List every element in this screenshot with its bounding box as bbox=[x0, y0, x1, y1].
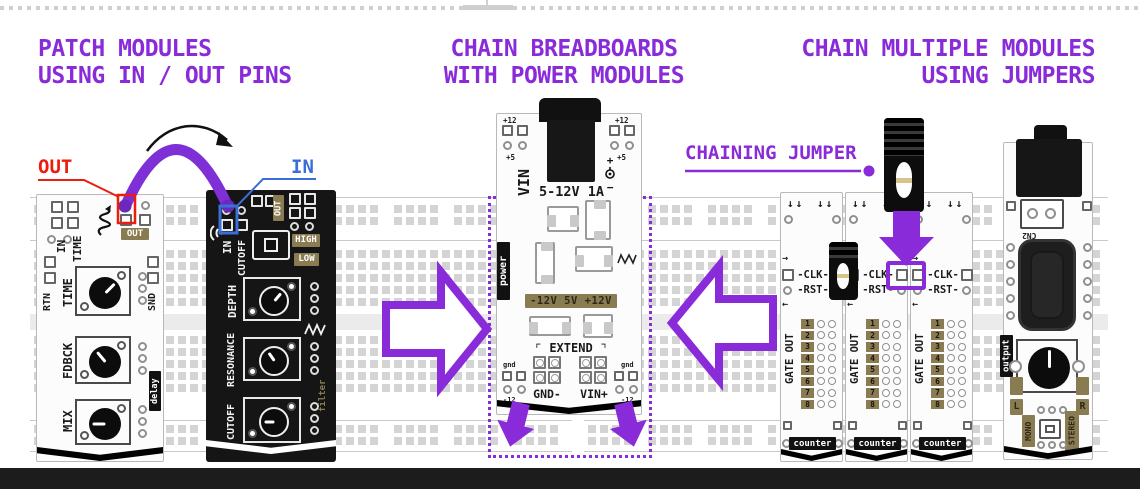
pad bbox=[1048, 406, 1056, 414]
clk-pins-highlight-box bbox=[886, 261, 926, 290]
down-arrows-icon: ↓↓ bbox=[852, 197, 869, 210]
down-arrows-icon: ↓↓ bbox=[787, 197, 804, 210]
chevron bbox=[37, 447, 163, 461]
pad bbox=[51, 201, 63, 213]
gate-out-label: GATE OUT bbox=[849, 319, 861, 399]
pad bbox=[913, 421, 922, 430]
smd-component bbox=[547, 206, 579, 232]
power-module: +12 +12 +5 +5 VIN + − 5-12V 1A power -12… bbox=[496, 113, 642, 415]
pad bbox=[1082, 201, 1092, 211]
pad bbox=[138, 405, 147, 414]
pad bbox=[138, 429, 147, 438]
delay-module: IN TIME OUT RTN SND TIME FDBCK bbox=[36, 194, 164, 462]
knob-label-depth: DEPTH bbox=[226, 282, 239, 320]
pad bbox=[139, 214, 151, 226]
speaker bbox=[1018, 239, 1076, 331]
pin-number: 8 bbox=[931, 400, 944, 410]
heading-line: USING IN / OUT PINS bbox=[38, 63, 292, 90]
jumper-installed bbox=[829, 242, 858, 300]
filter-high-label: HIGH bbox=[292, 234, 320, 247]
chaining-jumper-label: CHAINING JUMPER bbox=[685, 144, 857, 163]
pad bbox=[629, 385, 638, 394]
pad bbox=[625, 141, 634, 150]
brand-logo-icon bbox=[304, 322, 326, 336]
filter-in-pin-label: IN bbox=[221, 234, 234, 260]
pad bbox=[1083, 311, 1092, 320]
screw bbox=[287, 402, 296, 411]
gnd-header-label: GND- bbox=[530, 387, 564, 401]
smd-component bbox=[529, 316, 571, 336]
delay-rtn-label: RTN bbox=[42, 287, 53, 317]
counter-module-1: ↓↓ ↓↓ → -CLK- -RST- ← GATE OUT 1 2 3 4 5… bbox=[780, 192, 843, 462]
in-pin-pad bbox=[222, 206, 231, 215]
ic-footprint bbox=[252, 230, 290, 260]
barrel-jack-body bbox=[547, 120, 595, 182]
pad bbox=[138, 417, 147, 426]
pad bbox=[289, 193, 301, 205]
header-pin bbox=[548, 371, 561, 384]
in-callout-label: IN bbox=[291, 158, 314, 177]
footer-bar bbox=[0, 468, 1140, 489]
pin-number: 5 bbox=[931, 365, 944, 375]
arrow-right-icon: → bbox=[782, 253, 788, 264]
pad bbox=[914, 215, 923, 224]
smd-component bbox=[575, 246, 613, 272]
pad bbox=[962, 215, 971, 224]
chevron bbox=[781, 449, 842, 461]
down-arrows-icon: ↓↓ bbox=[947, 197, 964, 210]
pad bbox=[304, 193, 316, 205]
pin-number: 3 bbox=[801, 342, 814, 352]
pin-number: 1 bbox=[931, 319, 944, 329]
gnd-small-label: gnd bbox=[621, 361, 634, 369]
heading-line: CHAIN MULTIPLE MODULES bbox=[780, 36, 1095, 63]
pad bbox=[1027, 208, 1038, 219]
knob-mix bbox=[75, 399, 131, 445]
header-pin bbox=[533, 356, 546, 369]
screw bbox=[248, 429, 257, 438]
pad bbox=[963, 421, 972, 430]
delay-name-tag: delay bbox=[149, 371, 161, 411]
pad bbox=[147, 256, 159, 268]
filter-out-pad-label: OUT bbox=[273, 195, 284, 221]
pad bbox=[615, 385, 624, 394]
screw bbox=[248, 307, 257, 316]
header-pin bbox=[579, 371, 592, 384]
pad bbox=[628, 371, 638, 381]
header-pin bbox=[579, 356, 592, 369]
pin-number: 2 bbox=[801, 331, 814, 341]
pad bbox=[614, 371, 624, 381]
pad bbox=[624, 125, 635, 136]
pad bbox=[1009, 360, 1022, 373]
heading-line: WITH POWER MODULES bbox=[420, 63, 708, 90]
pad bbox=[44, 272, 56, 284]
pad bbox=[1083, 243, 1092, 252]
coil-icon bbox=[93, 203, 119, 239]
gnd-small-label: gnd bbox=[503, 361, 516, 369]
pad bbox=[67, 201, 79, 213]
pad bbox=[1083, 260, 1092, 269]
brand-logo-icon bbox=[617, 252, 637, 265]
down-arrows-icon: ↓↓ bbox=[817, 197, 834, 210]
diagram-canvas: PATCH MODULES USING IN / OUT PINS CHAIN … bbox=[0, 0, 1140, 489]
pad bbox=[518, 141, 527, 150]
screw bbox=[80, 370, 89, 379]
knob-label-fdbck: FDBCK bbox=[61, 337, 75, 385]
pin-number: 6 bbox=[866, 377, 879, 387]
pad bbox=[517, 385, 526, 394]
gate-out-pins: 1 2 3 4 5 6 7 8 bbox=[931, 319, 966, 409]
pin-number: 8 bbox=[801, 400, 814, 410]
knob-depth bbox=[243, 277, 301, 321]
out-pin-pad bbox=[122, 201, 131, 210]
gate-out-label: GATE OUT bbox=[784, 319, 796, 399]
header-pin bbox=[533, 371, 546, 384]
pin-number: 7 bbox=[866, 388, 879, 398]
pad bbox=[502, 371, 512, 381]
pin-number: 6 bbox=[801, 377, 814, 387]
mode-selector bbox=[1039, 419, 1061, 439]
pin-number: 4 bbox=[801, 354, 814, 364]
pad bbox=[1083, 277, 1092, 286]
screw bbox=[287, 282, 296, 291]
plus-glyph: + bbox=[607, 154, 614, 167]
pin-number: 1 bbox=[801, 319, 814, 329]
header-pin bbox=[548, 356, 561, 369]
pad bbox=[310, 342, 319, 351]
chevron bbox=[497, 400, 641, 414]
pad bbox=[832, 215, 841, 224]
pad bbox=[849, 215, 858, 224]
pad bbox=[848, 421, 857, 430]
solder-pad bbox=[1010, 377, 1023, 395]
rst-pin bbox=[962, 286, 971, 295]
pad bbox=[783, 421, 792, 430]
plus12-label: +12 bbox=[503, 116, 517, 125]
header-pin bbox=[594, 371, 607, 384]
pad bbox=[310, 426, 319, 435]
pad bbox=[1037, 441, 1045, 449]
top-dotted-line bbox=[0, 6, 1140, 10]
chevron bbox=[846, 449, 907, 461]
counter-name-tag: counter bbox=[919, 437, 966, 450]
heading-line: PATCH MODULES bbox=[38, 36, 292, 63]
heading-patch-modules: PATCH MODULES USING IN / OUT PINS bbox=[38, 36, 292, 90]
pad bbox=[310, 366, 319, 375]
arrowhead bbox=[216, 132, 233, 147]
pad bbox=[310, 282, 319, 291]
pad bbox=[897, 215, 906, 224]
pin-number: 5 bbox=[801, 365, 814, 375]
knob-label-time: TIME bbox=[61, 273, 75, 313]
delay-in-pin-label: IN bbox=[55, 233, 68, 259]
rst-label: -RST- bbox=[795, 284, 831, 296]
pad bbox=[609, 125, 620, 136]
pad bbox=[610, 141, 619, 150]
pad bbox=[898, 421, 907, 430]
vin-header-label: VIN+ bbox=[577, 387, 611, 401]
pad bbox=[237, 206, 246, 215]
pad bbox=[51, 217, 63, 229]
barrel-jack bbox=[539, 98, 601, 122]
rst-pin bbox=[783, 286, 792, 295]
pad bbox=[1072, 360, 1085, 373]
patch-direction-arrow bbox=[147, 126, 227, 151]
knob-fdbck bbox=[75, 336, 131, 384]
heading-chain-modules: CHAIN MULTIPLE MODULES USING JUMPERS bbox=[780, 36, 1095, 90]
counter-name-tag: counter bbox=[854, 437, 901, 450]
pad bbox=[310, 306, 319, 315]
pad bbox=[310, 354, 319, 363]
chevron bbox=[911, 449, 972, 461]
pad bbox=[138, 296, 147, 305]
pad bbox=[503, 141, 512, 150]
screw bbox=[117, 404, 126, 413]
power-name-tag: power bbox=[497, 242, 510, 300]
filter-low-label: LOW bbox=[294, 253, 319, 266]
pad bbox=[138, 354, 147, 363]
pad bbox=[138, 366, 147, 375]
out-pin-pad bbox=[120, 214, 132, 226]
gate-out-label: GATE OUT bbox=[914, 319, 926, 399]
heading-line: USING JUMPERS bbox=[780, 63, 1095, 90]
pin-number: 4 bbox=[931, 354, 944, 364]
filter-module: IN CUTOFF OUT HIGH LOW DEPTH RESONANCE bbox=[206, 190, 336, 462]
pad bbox=[138, 272, 147, 281]
header-pin bbox=[594, 356, 607, 369]
audio-jack bbox=[1016, 139, 1082, 197]
extend-label: ⌜ EXTEND ⌝ bbox=[531, 341, 611, 355]
clk-label: -CLK- bbox=[925, 269, 961, 281]
counter-name-tag: counter bbox=[789, 437, 836, 450]
cn2-connector bbox=[1020, 199, 1064, 229]
vin-label: VIN bbox=[515, 160, 533, 204]
arrow-left-icon: ← bbox=[912, 299, 918, 310]
pin-number: 8 bbox=[866, 400, 879, 410]
smd-component bbox=[585, 200, 611, 240]
left-channel-label: L bbox=[1010, 399, 1023, 415]
smd-component bbox=[535, 242, 555, 284]
pin-number: 3 bbox=[931, 342, 944, 352]
arrow-left-icon: ← bbox=[782, 299, 788, 310]
knob-resonance bbox=[243, 337, 301, 381]
heading-line: CHAIN BREADBOARDS bbox=[420, 36, 708, 63]
arrow-left-icon: ← bbox=[847, 299, 853, 310]
pad bbox=[502, 125, 513, 136]
mono-label: MONO bbox=[1022, 415, 1035, 447]
gate-out-pins: 1 2 3 4 5 6 7 8 bbox=[866, 319, 901, 409]
screw bbox=[117, 271, 126, 280]
pad bbox=[44, 256, 56, 268]
pad bbox=[1006, 243, 1015, 252]
pad bbox=[305, 222, 314, 231]
pad bbox=[1048, 441, 1056, 449]
knob-label-cutoff: CUTOFF bbox=[226, 400, 237, 444]
pad bbox=[310, 294, 319, 303]
knob-label-mix: MIX bbox=[61, 403, 75, 439]
pad bbox=[1083, 294, 1092, 303]
filter-name-tag: filter bbox=[318, 376, 328, 416]
counter-module-3: ↓↓ ↓↓ → -CLK- -RST- ← GATE OUT 1 2 3 4 5… bbox=[910, 192, 973, 462]
plus5-label: +5 bbox=[506, 153, 515, 162]
pin-number: 5 bbox=[866, 365, 879, 375]
jumper-floating bbox=[884, 118, 924, 212]
pin-number: 3 bbox=[866, 342, 879, 352]
heading-chain-breadboards: CHAIN BREADBOARDS WITH POWER MODULES bbox=[420, 36, 708, 90]
pin-number: 1 bbox=[866, 319, 879, 329]
pin-number: 2 bbox=[866, 331, 879, 341]
pad bbox=[141, 201, 150, 210]
pad bbox=[304, 207, 316, 219]
knob-cutoff bbox=[243, 397, 301, 443]
solder-pad bbox=[1076, 377, 1089, 395]
rst-label: -RST- bbox=[925, 284, 961, 296]
delay-out-pad-label: OUT bbox=[121, 228, 149, 240]
volume-knob bbox=[1016, 339, 1078, 393]
rail-voltages-label: -12V 5V +12V bbox=[525, 294, 617, 308]
chaining-callout-dot bbox=[864, 166, 875, 177]
knob-label-resonance: RESONANCE bbox=[226, 332, 237, 388]
gate-out-pins: 1 2 3 4 5 6 7 8 bbox=[801, 319, 836, 409]
pad bbox=[833, 421, 842, 430]
clk-label: -CLK- bbox=[795, 269, 831, 281]
screw bbox=[80, 302, 89, 311]
pin-number: 4 bbox=[866, 354, 879, 364]
pad bbox=[1006, 277, 1015, 286]
stereo-label: STEREO bbox=[1065, 411, 1079, 451]
screw bbox=[117, 341, 126, 350]
output-module: CN2 output L R MONO STEREO bbox=[1003, 142, 1093, 460]
pad bbox=[1045, 208, 1056, 219]
plus12-label: +12 bbox=[615, 116, 629, 125]
pad bbox=[289, 207, 301, 219]
screw bbox=[287, 342, 296, 351]
pad bbox=[1037, 406, 1045, 414]
in-pin-pad bbox=[221, 219, 233, 231]
pad bbox=[251, 195, 263, 207]
pad bbox=[147, 272, 159, 284]
power-rating-label: 5-12V 1A bbox=[539, 184, 641, 200]
out-callout-label: OUT bbox=[38, 158, 72, 177]
pad bbox=[517, 125, 528, 136]
pad bbox=[516, 371, 526, 381]
pad bbox=[1006, 201, 1016, 211]
pad bbox=[1059, 441, 1067, 449]
screw bbox=[80, 431, 89, 440]
pin-number: 7 bbox=[931, 388, 944, 398]
top-marker-bar bbox=[463, 5, 513, 10]
pad bbox=[1006, 260, 1015, 269]
pin-number: 6 bbox=[931, 377, 944, 387]
pin-number: 7 bbox=[801, 388, 814, 398]
pad bbox=[503, 385, 512, 394]
pad bbox=[138, 284, 147, 293]
clk-pin bbox=[782, 269, 794, 281]
pad bbox=[784, 215, 793, 224]
pad bbox=[1006, 294, 1015, 303]
pin-number: 2 bbox=[931, 331, 944, 341]
knob-time bbox=[75, 266, 131, 316]
smd-component bbox=[583, 314, 613, 338]
delay-snd-label: SND bbox=[147, 287, 158, 317]
pad bbox=[290, 222, 299, 231]
pad bbox=[138, 342, 147, 351]
counter-module-2: ↓↓ ↓↓ → -CLK- -RST- ← GATE OUT 1 2 3 4 5… bbox=[845, 192, 908, 462]
clk-pin bbox=[961, 269, 973, 281]
screw bbox=[248, 367, 257, 376]
pad bbox=[1006, 311, 1015, 320]
